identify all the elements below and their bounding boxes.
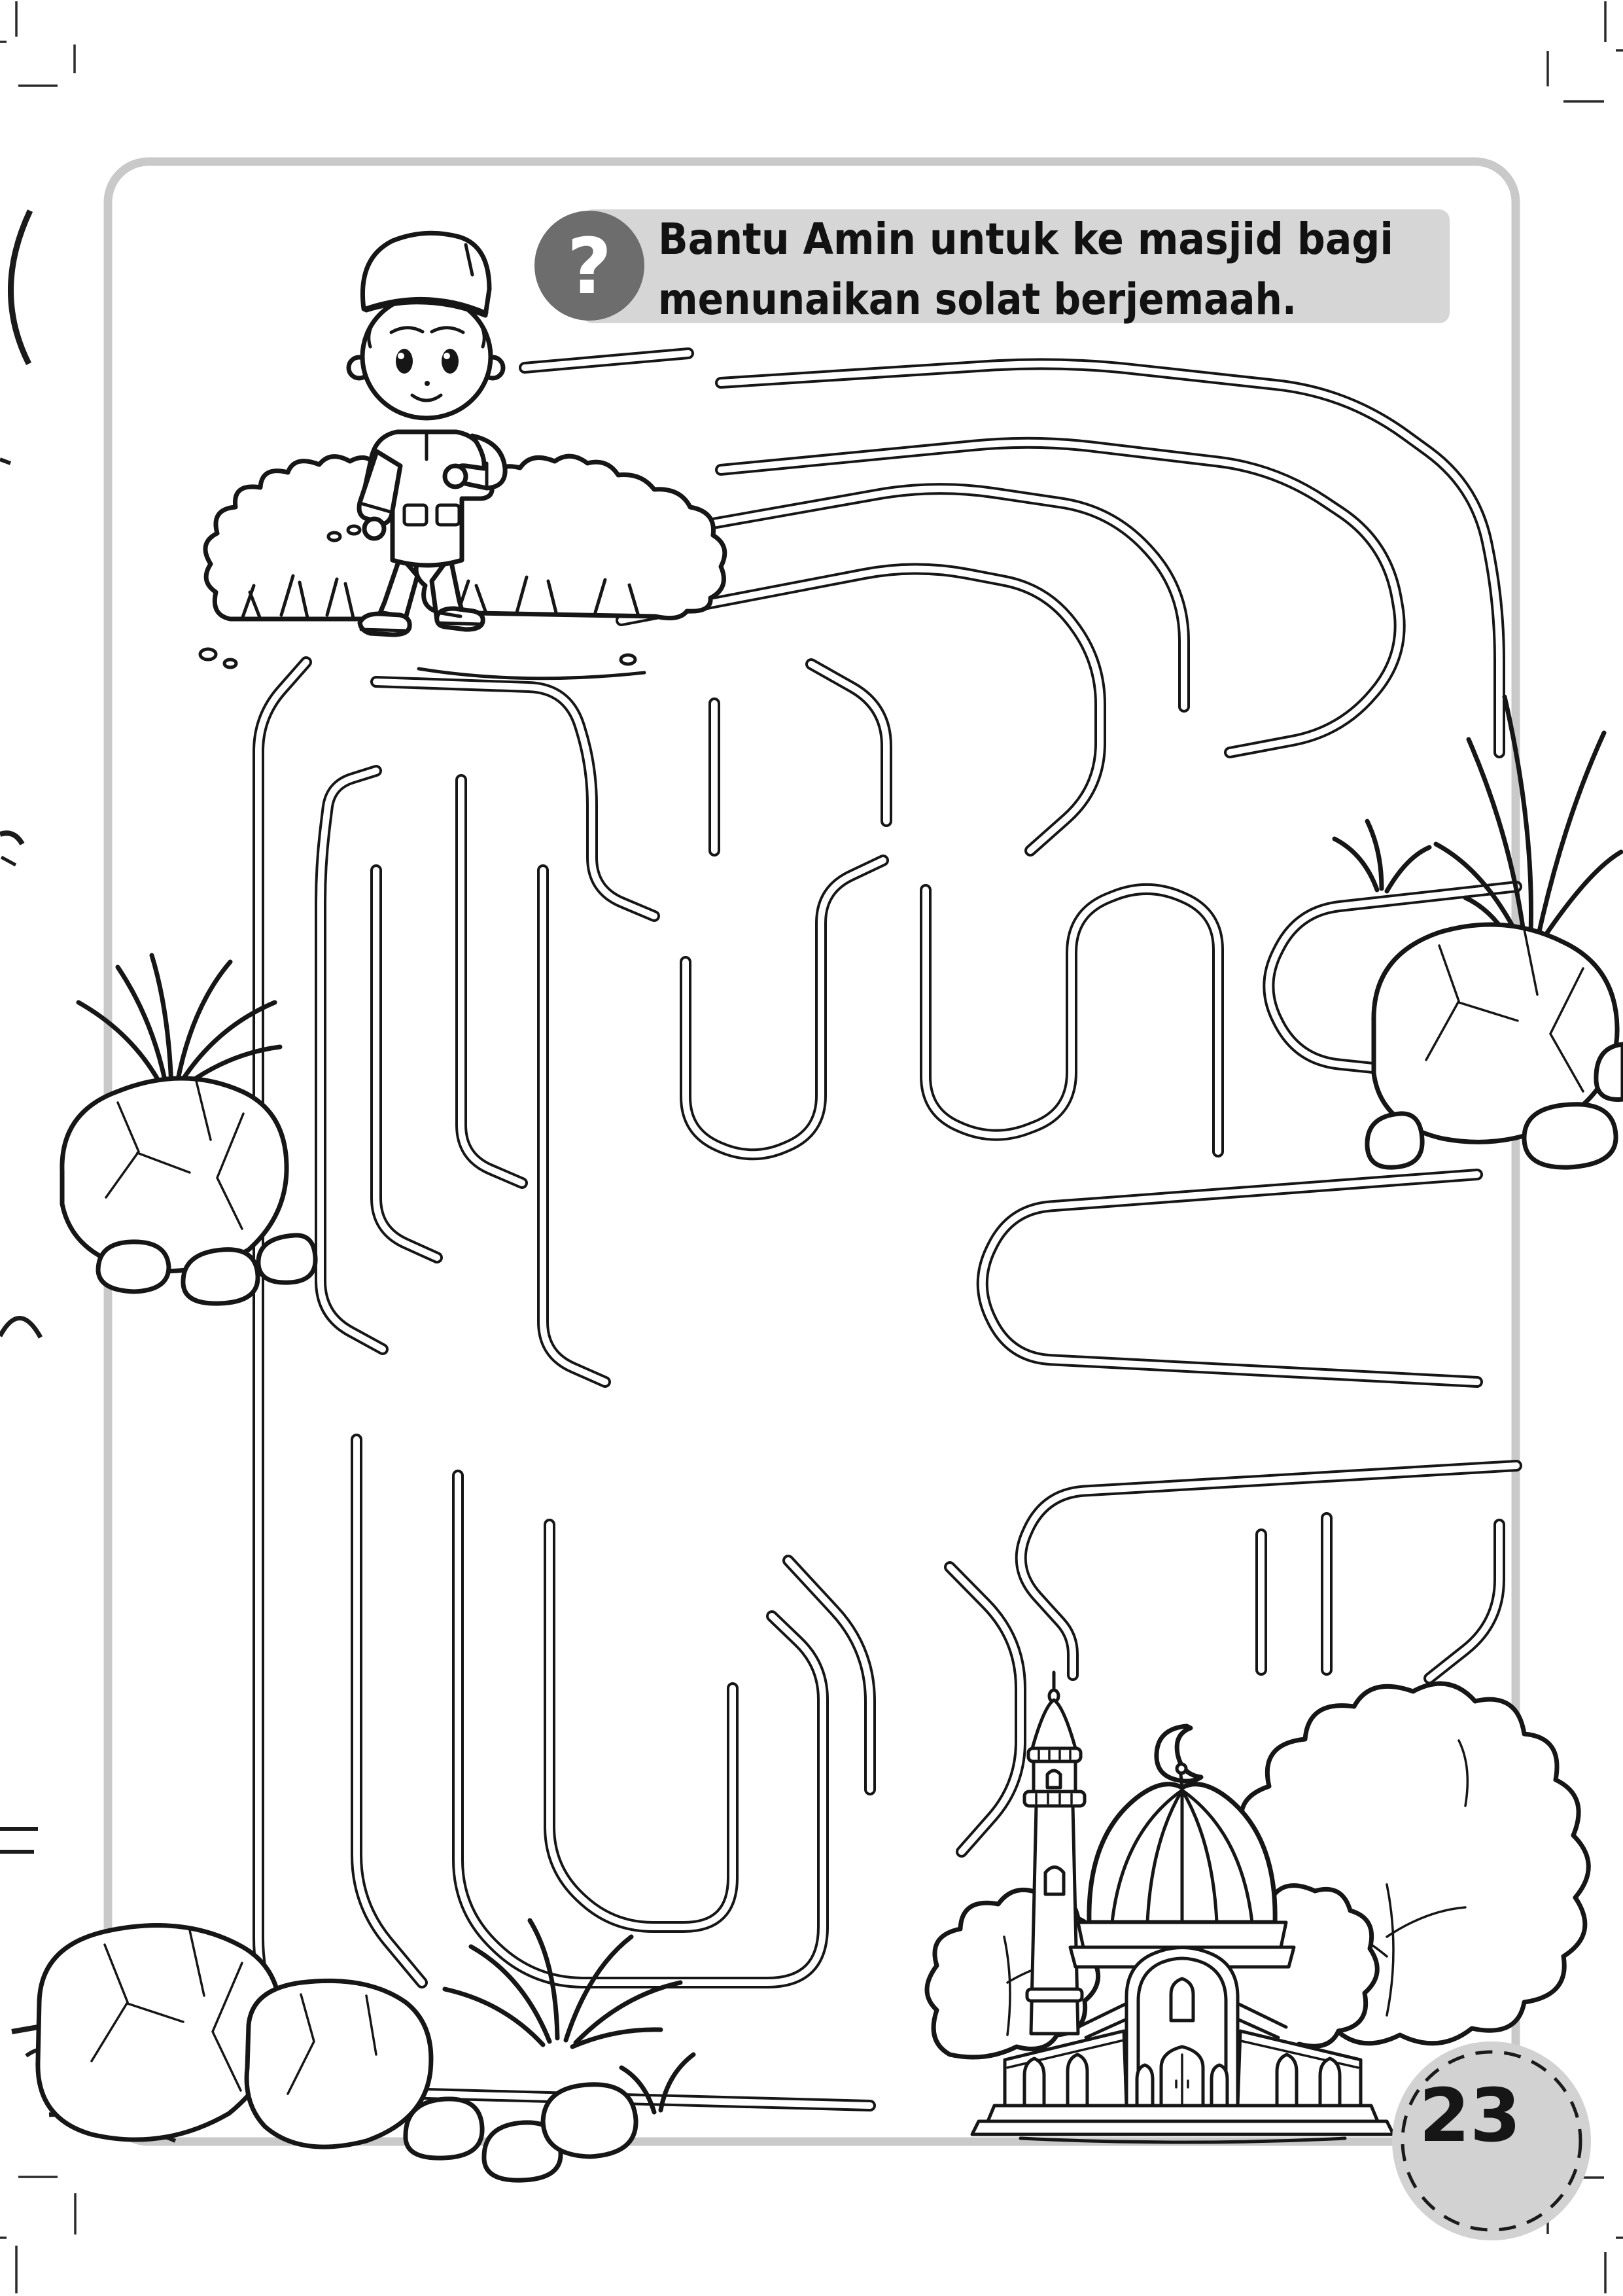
minaret-window bbox=[1045, 1867, 1064, 1895]
rock bbox=[543, 2085, 636, 2157]
boy-hand bbox=[445, 466, 466, 487]
worksheet-page: ? Bantu Amin untuk ke masjid bagi menuna… bbox=[0, 0, 1623, 2296]
gable-window bbox=[1171, 1979, 1193, 2021]
rock bbox=[247, 1981, 431, 2147]
rock bbox=[62, 1078, 287, 1271]
leaf-icon bbox=[348, 526, 360, 534]
rock bbox=[183, 1250, 258, 1303]
arch-window bbox=[1068, 2055, 1087, 2106]
boy-shoe bbox=[437, 609, 483, 629]
mosque-base bbox=[988, 2106, 1378, 2121]
instruction-header: ? Bantu Amin untuk ke masjid bagi menuna… bbox=[534, 209, 1450, 325]
mosque-base bbox=[972, 2121, 1393, 2134]
arch-window bbox=[1024, 2058, 1044, 2106]
boy-nose bbox=[425, 381, 430, 386]
rock bbox=[98, 1242, 169, 1292]
instruction-line-1: Bantu Amin untuk ke masjid bagi bbox=[658, 214, 1393, 264]
page-number: 23 bbox=[1419, 2074, 1521, 2159]
instruction-line-2: menunaikan solat berjemaah. bbox=[658, 274, 1297, 325]
rocks-right bbox=[1367, 925, 1623, 1167]
rock bbox=[1367, 1114, 1422, 1167]
page-svg: ? Bantu Amin untuk ke masjid bagi menuna… bbox=[0, 0, 1623, 2296]
rock bbox=[406, 2099, 482, 2158]
rock bbox=[1524, 1104, 1616, 1167]
tunic-pocket bbox=[404, 505, 427, 525]
tunic-pocket bbox=[437, 505, 459, 525]
boy-eye bbox=[396, 349, 413, 374]
page-number-badge: 23 bbox=[1392, 2041, 1591, 2240]
question-mark-icon: ? bbox=[567, 221, 612, 311]
boy-hand bbox=[364, 519, 384, 539]
rock bbox=[258, 1235, 315, 1282]
leaf-icon bbox=[328, 533, 340, 540]
arch-window bbox=[1277, 2055, 1297, 2106]
boy-eye bbox=[442, 349, 459, 374]
arch-window bbox=[1320, 2058, 1340, 2106]
